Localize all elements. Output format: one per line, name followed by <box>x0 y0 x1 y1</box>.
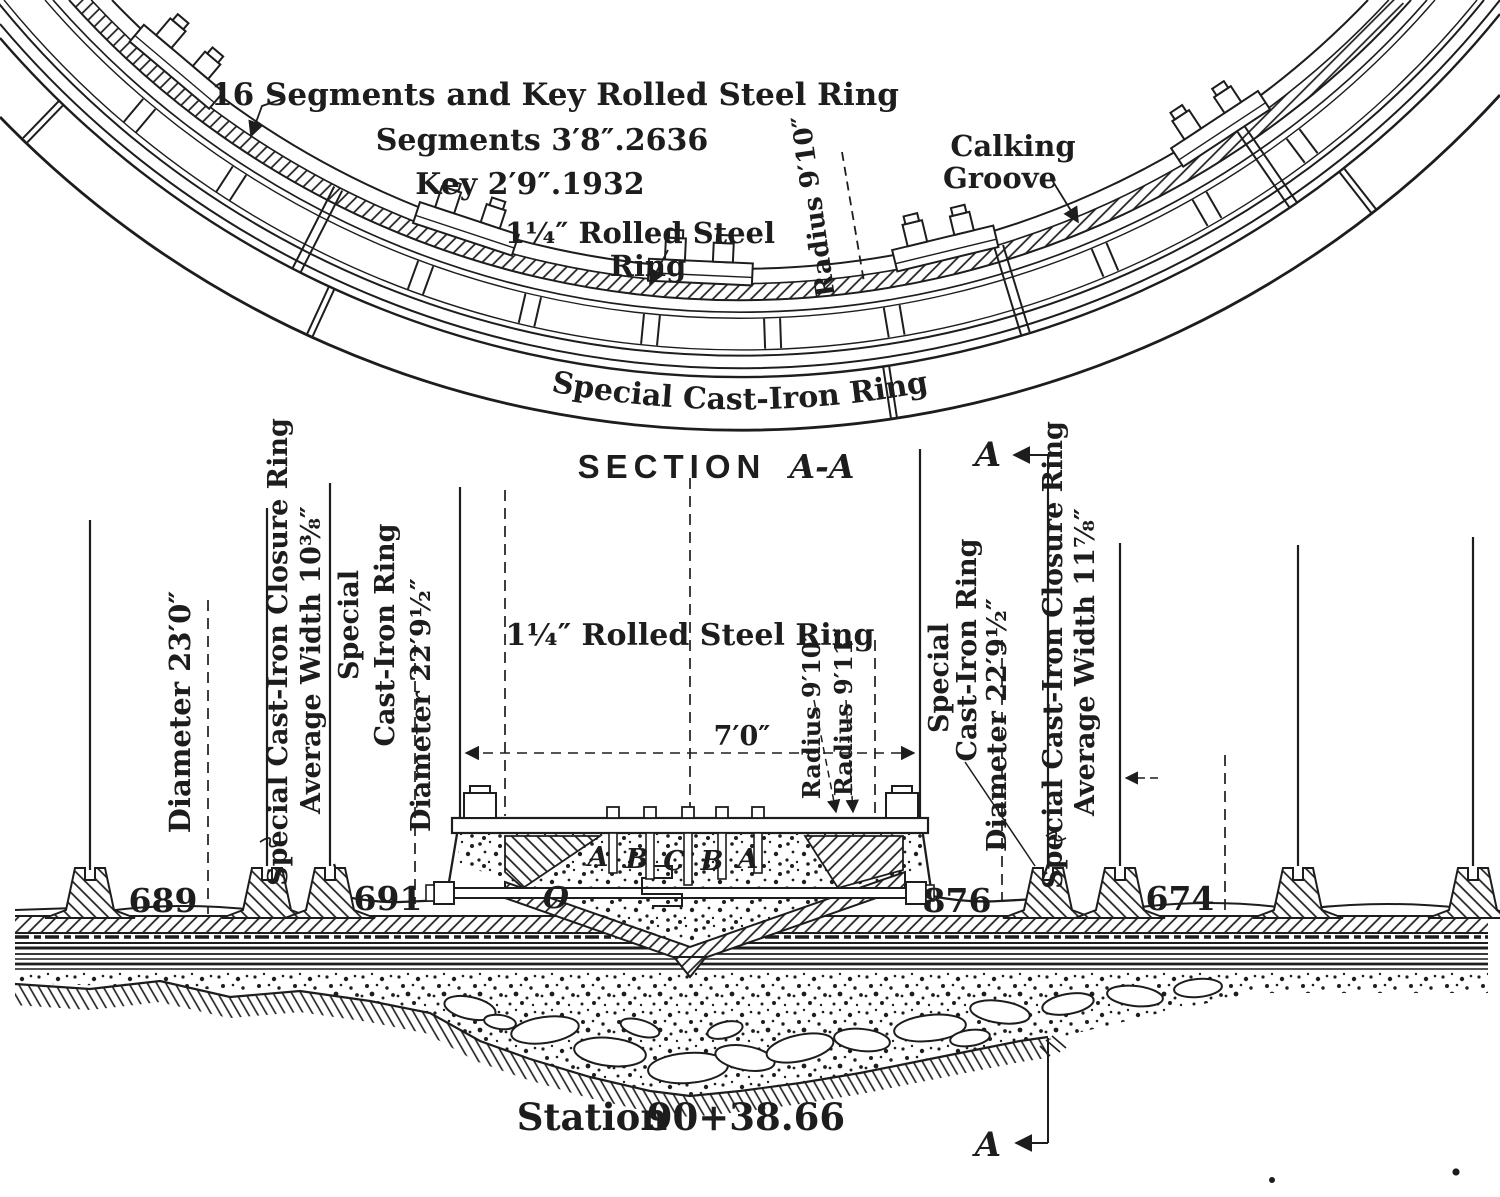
section-title: SECTION A-A <box>578 447 855 486</box>
label-right-special-1: Special <box>924 623 955 733</box>
label-calking-1: Calking <box>950 129 1075 163</box>
section-title-cut: A-A <box>787 447 855 486</box>
section-marker-top: A <box>972 435 1048 492</box>
section-view: A B C B A O 7′0″ A A 689 691 <box>15 418 1500 1183</box>
grout-letter-a2: A <box>735 844 759 875</box>
gravel-fill <box>15 972 1488 1095</box>
origin-letter: O <box>543 881 569 916</box>
label-width-dim: 7′0″ <box>714 721 771 752</box>
label-left-closure-2: Average Width 10⅜″ <box>296 506 327 815</box>
label-radius-9-11: Radius 9′11″ <box>829 628 858 797</box>
grout-letter-b1: B <box>625 844 649 875</box>
label-diameter-23: Diameter 23′0″ <box>163 591 197 833</box>
label-cast-iron-ring-band: Special Cast-Iron Ring <box>549 365 930 418</box>
label-segments-note-3: Key 2′9″.1932 <box>415 167 644 202</box>
bearing-plate <box>452 818 928 833</box>
label-segments-note-1: 16 Segments and Key Rolled Steel Ring <box>211 77 899 113</box>
section-title-word: SECTION <box>578 448 767 485</box>
ring-number-689: 689 <box>129 881 198 920</box>
label-right-closure-1: Special Cast-Iron Closure Ring <box>1038 421 1069 889</box>
ring-number-674: 674 <box>1146 879 1215 918</box>
label-right-closure-2: Average Width 11⅞″ <box>1070 508 1101 817</box>
label-calking-2: Groove <box>943 161 1057 195</box>
label-station-value: 90+38.66 <box>647 1095 845 1139</box>
tie-rod-bolt-left <box>434 882 454 904</box>
scan-speck-2 <box>1452 1168 1459 1175</box>
label-left-closure-1: Special Cast-Iron Closure Ring <box>263 418 294 886</box>
label-station: Station <box>517 1095 668 1139</box>
ring-number-876: 876 <box>923 881 992 920</box>
label-segments-note-2: Segments 3′8″.2636 <box>376 123 709 158</box>
ring-number-691: 691 <box>354 879 423 918</box>
label-left-special-1: Special <box>334 570 365 680</box>
label-left-special-3: Diameter 22′9½″ <box>406 578 437 832</box>
label-right-special-2: Cast-Iron Ring <box>952 538 983 761</box>
section-marker-top-letter: A <box>972 435 1001 475</box>
grout-letter-c: C <box>663 846 685 877</box>
grout-letter-b2: B <box>700 846 724 877</box>
tie-rod-cap-left <box>426 885 434 901</box>
label-radius-9-10: Radius 9′10″ <box>797 631 826 800</box>
plate-studs <box>607 807 764 818</box>
label-rolled-steel-ring-1: 1¼″ Rolled Steel <box>505 216 775 250</box>
timber-strata-lines <box>15 943 1488 969</box>
section-marker-bottom-letter: A <box>972 1125 1001 1165</box>
grout-letter-a1: A <box>585 842 609 873</box>
plan-view-ring: 16 Segments and Key Rolled Steel Ring Se… <box>0 0 1500 430</box>
label-rolled-steel-ring-2: Ring <box>610 249 686 283</box>
engineering-drawing-sheet: 16 Segments and Key Rolled Steel Ring Se… <box>0 0 1500 1197</box>
scan-speck-1 <box>1269 1177 1275 1183</box>
label-plan-radius: Radius 9′10″ <box>787 114 842 299</box>
label-left-special-2: Cast-Iron Ring <box>370 523 401 746</box>
drawing-canvas: 16 Segments and Key Rolled Steel Ring Se… <box>0 0 1500 1197</box>
label-right-special-3: Diameter 22′9½″ <box>982 598 1013 852</box>
